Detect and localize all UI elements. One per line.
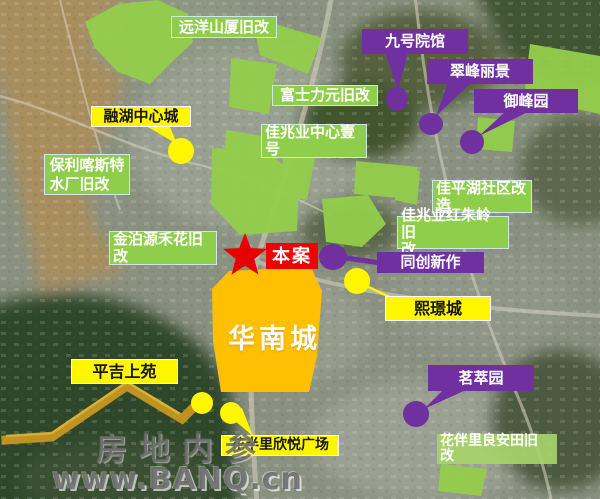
dot-huabanli-xinyue [220, 402, 242, 424]
label-cuifeng-lijing: 翠峰丽景 [427, 59, 533, 84]
label-baoli-kasite: 保利喀斯特 水厂旧改 [44, 154, 130, 195]
dot-cuifeng [419, 113, 443, 135]
dot-tongchuang [319, 244, 347, 270]
label-huabanli-liangantian: 花伴里良安田旧 改 [437, 434, 557, 464]
label-tongchuang-xinzuo: 同创新作 [377, 252, 484, 273]
green-zone [438, 464, 487, 496]
zone-title-huanancheng: 华南城 [228, 317, 321, 356]
callout-tail-mingcui [424, 390, 466, 409]
dot-mingcui [403, 401, 429, 427]
site-label: 本案 [266, 243, 318, 269]
green-zone [85, 0, 193, 84]
callout-tail-jiuhao [385, 52, 408, 90]
green-zone [322, 195, 386, 247]
label-yuanyang: 远洋山厦旧改 [171, 16, 277, 38]
label-mingcuiyuan: 茗萃园 [428, 365, 534, 391]
label-fushiliyuan: 富士力元旧改 [272, 85, 378, 106]
label-xijingcheng: 熙璟城 [385, 296, 491, 321]
label-pingji-shangyuan: 平吉上苑 [71, 359, 178, 384]
dot-yufeng [460, 130, 484, 154]
site-star-icon [223, 233, 267, 275]
label-jinboyuan-hehua: 金泊源禾花旧 改 [109, 231, 217, 265]
green-zone [395, 167, 420, 205]
dot-ronghu [168, 138, 194, 164]
dot-pingji [191, 392, 213, 414]
label-jiazhaoye-hongzhuling: 佳兆业红朱岭旧 改 [397, 216, 509, 249]
green-zone [229, 58, 277, 114]
watermark-url: www.BANQ.cn [52, 462, 303, 497]
annotated-satellite-map: 远洋山厦旧改 富士力元旧改 佳兆业中心壹 号 保利喀斯特 水厂旧改 金泊源禾花旧… [0, 0, 600, 499]
dot-xijingcheng [344, 268, 370, 294]
label-jiuhao-yuanguan: 九号院馆 [362, 29, 468, 54]
label-jiazhaoye-center: 佳兆业中心壹 号 [261, 124, 367, 158]
label-ronghu-zhongxincheng: 融湖中心城 [91, 106, 191, 127]
label-yufengyuan: 御峰园 [474, 89, 578, 113]
callout-tail-cuifeng [436, 82, 472, 116]
dot-jiuhao [386, 87, 408, 111]
